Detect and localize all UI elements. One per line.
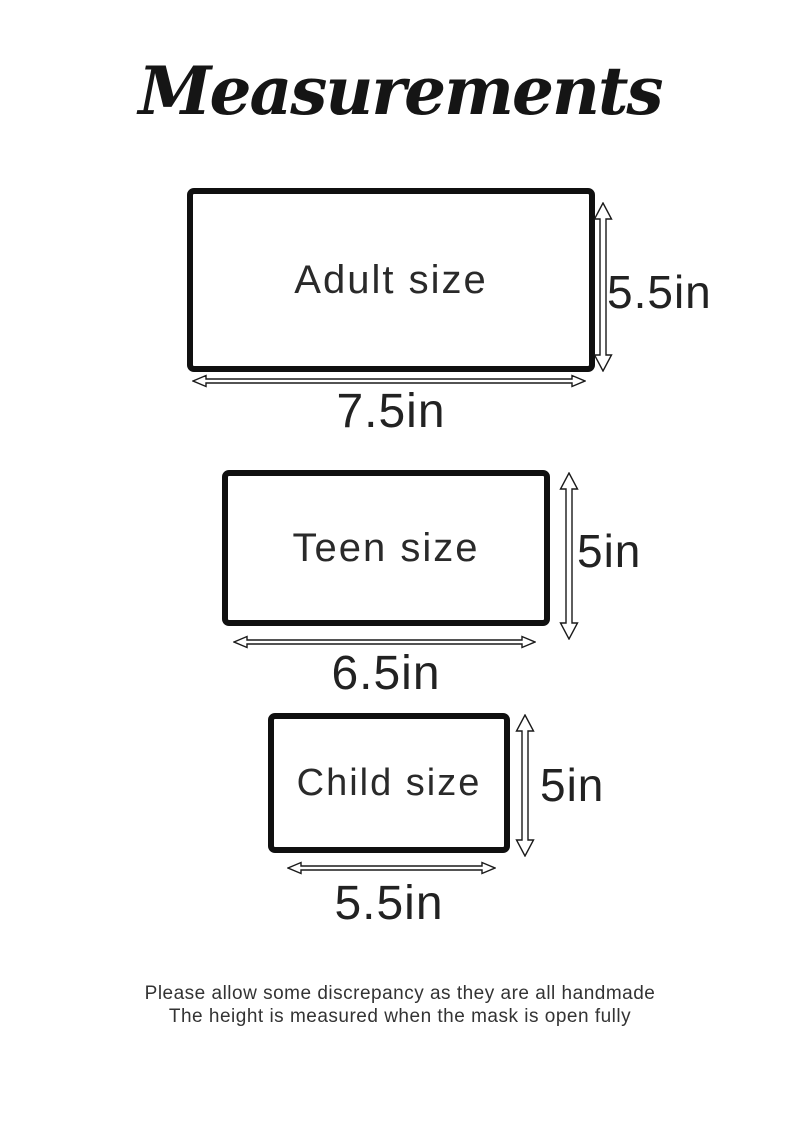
child-size-rect: Child size — [268, 713, 510, 853]
footer-line-1: Please allow some discrepancy as they ar… — [0, 982, 800, 1005]
footer-note: Please allow some discrepancy as they ar… — [0, 982, 800, 1028]
child-height-value: 5in — [540, 758, 604, 812]
child-width-value: 5.5in — [268, 876, 510, 931]
teen-size-label: Teen size — [293, 526, 480, 571]
child-size-label: Child size — [297, 762, 482, 805]
adult-size-rect: Adult size — [187, 188, 595, 372]
adult-size-label: Adult size — [294, 258, 487, 303]
teen-size-rect: Teen size — [222, 470, 550, 626]
adult-height-value: 5.5in — [607, 265, 712, 319]
measurements-sheet: Measurements Adult size 5.5in 7.5in Teen… — [0, 0, 800, 1130]
adult-width-value: 7.5in — [187, 384, 595, 439]
teen-height-value: 5in — [577, 524, 641, 578]
child-width-arrow-icon — [287, 860, 496, 876]
footer-line-2: The height is measured when the mask is … — [0, 1005, 800, 1028]
teen-width-value: 6.5in — [222, 646, 550, 701]
page-title: Measurements — [0, 52, 800, 130]
child-height-arrow-icon — [514, 714, 536, 857]
